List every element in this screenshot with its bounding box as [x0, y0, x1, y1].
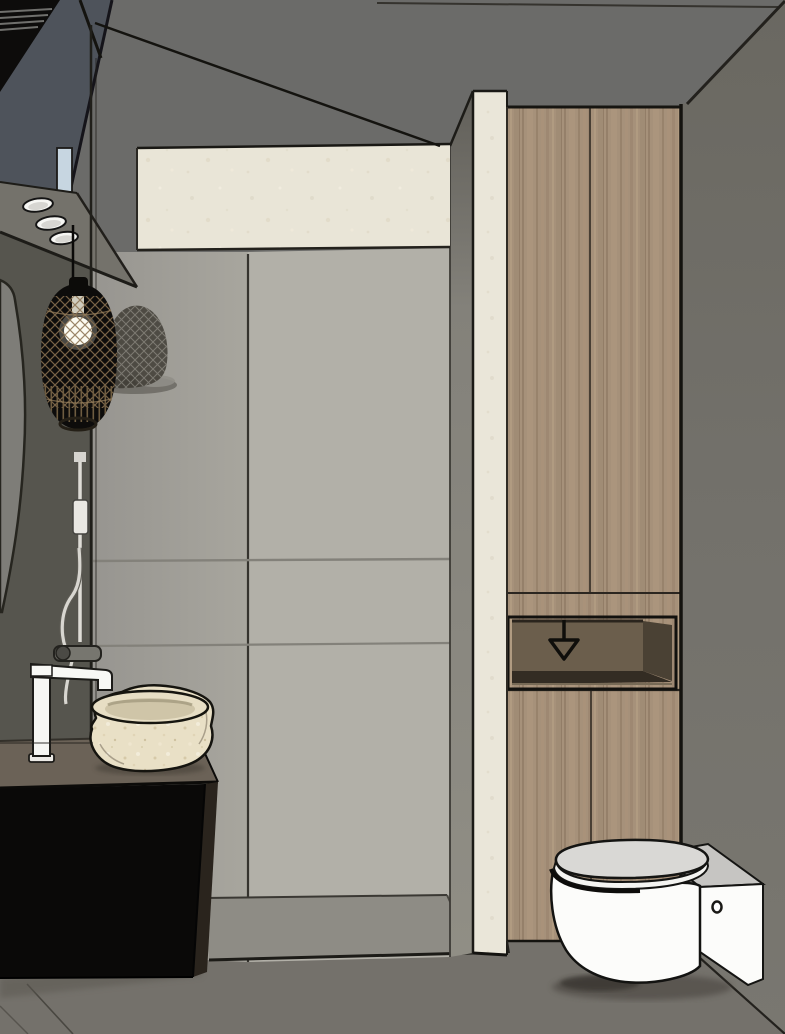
rail-top-holder [74, 452, 86, 462]
partition-inner-face [450, 91, 473, 957]
pendant-cap [69, 277, 88, 290]
faucet-handle [31, 665, 52, 676]
toilet-lid [556, 840, 708, 878]
glass-shelf [57, 148, 72, 192]
wooden-cabinet [507, 104, 681, 941]
cabinet-niche [508, 617, 676, 689]
stone-sink [90, 685, 213, 775]
bathroom-render [0, 0, 785, 1034]
toilet-button [713, 902, 722, 913]
shower-header-band [137, 144, 450, 250]
vanity-front [0, 784, 205, 978]
cream-column [473, 91, 507, 955]
mixer-knob [56, 646, 70, 660]
shower-tray [205, 895, 473, 960]
rail-slider [73, 500, 88, 534]
render-canvas [0, 0, 785, 1034]
